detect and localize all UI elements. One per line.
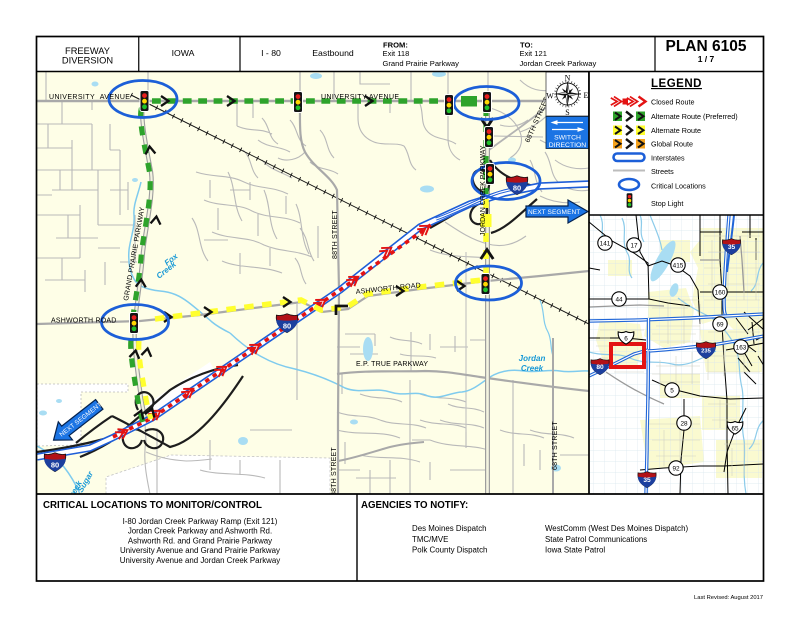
svg-text:W: W [546,92,554,101]
svg-text:TMC/MVE: TMC/MVE [412,535,448,544]
svg-text:92: 92 [672,466,680,473]
svg-text:Eastbound: Eastbound [312,48,354,58]
svg-text:N: N [565,74,571,83]
svg-text:S: S [565,108,569,117]
svg-text:80: 80 [596,364,604,371]
svg-text:UNIVERSITY AVENUE: UNIVERSITY AVENUE [49,94,130,101]
svg-text:Interstates: Interstates [651,154,685,163]
svg-text:88TH STREET: 88TH STREET [332,210,339,259]
svg-text:Jordan Creek Parkway and Ashwo: Jordan Creek Parkway and Ashworth Rd. [128,527,272,536]
svg-text:AGENCIES TO NOTIFY:: AGENCIES TO NOTIFY: [361,500,468,511]
svg-text:DIVERSION: DIVERSION [62,56,113,66]
svg-text:DIRECTION: DIRECTION [549,142,586,149]
svg-text:E.P. TRUE PARKWAY: E.P. TRUE PARKWAY [356,361,428,368]
svg-text:State Patrol Communications: State Patrol Communications [545,535,647,544]
svg-text:University Avenue and Jordan C: University Avenue and Jordan Creek Parkw… [120,556,280,565]
svg-text:LEGEND: LEGEND [651,78,702,90]
svg-text:Polk County Dispatch: Polk County Dispatch [412,546,487,555]
svg-text:Grand Prairie Parkway: Grand Prairie Parkway [383,59,460,68]
svg-text:Last Revised: August 2017: Last Revised: August 2017 [694,595,763,601]
svg-text:Ashworth Rd. and Grand Prairie: Ashworth Rd. and Grand Prairie Parkway [128,536,272,545]
svg-text:JORDAN CREEK PARKWAY: JORDAN CREEK PARKWAY [480,145,487,236]
svg-text:E: E [584,91,589,100]
svg-text:1 / 7: 1 / 7 [698,54,715,64]
svg-text:44: 44 [615,297,623,304]
svg-text:28: 28 [680,421,688,428]
svg-text:Exit 118: Exit 118 [383,49,410,58]
svg-text:160: 160 [715,290,726,297]
svg-text:Jordan Creek Parkway: Jordan Creek Parkway [520,59,597,68]
svg-text:Alternate Route (Preferred): Alternate Route (Preferred) [651,112,738,121]
svg-text:Closed Route: Closed Route [651,98,695,107]
svg-text:Alternate Route: Alternate Route [651,126,701,135]
svg-text:CRITICAL LOCATIONS TO MONITOR/: CRITICAL LOCATIONS TO MONITOR/CONTROL [43,500,262,511]
svg-text:65: 65 [731,426,739,433]
svg-text:I-80 Jordan Creek Parkway Ramp: I-80 Jordan Creek Parkway Ramp (Exit 121… [123,517,278,526]
svg-text:University Avenue and Grand Pr: University Avenue and Grand Prairie Park… [120,546,280,555]
svg-text:68TH STREET: 68TH STREET [552,421,559,470]
svg-text:Creek: Creek [521,364,544,373]
svg-text:Iowa State Patrol: Iowa State Patrol [545,546,605,555]
svg-text:PLAN 6105: PLAN 6105 [666,38,747,55]
svg-text:FREEWAY: FREEWAY [65,46,110,56]
svg-text:17: 17 [630,243,638,250]
svg-text:35: 35 [643,477,651,484]
svg-text:88TH STREET: 88TH STREET [331,447,338,496]
svg-text:415: 415 [673,263,684,270]
svg-text:6: 6 [624,336,628,343]
svg-text:WestComm (West Des Moines Disp: WestComm (West Des Moines Dispatch) [545,524,688,533]
svg-text:I - 80: I - 80 [261,48,281,58]
svg-text:Global Route: Global Route [651,140,693,149]
svg-text:NEXT SEGMENT: NEXT SEGMENT [528,209,580,216]
svg-text:235: 235 [701,349,711,355]
svg-text:SWITCH: SWITCH [554,135,581,142]
svg-text:Critical Locations: Critical Locations [651,182,706,191]
svg-text:163: 163 [736,345,747,352]
svg-text:141: 141 [600,241,611,248]
svg-text:UNIVERSITY AVENUE: UNIVERSITY AVENUE [321,94,400,101]
svg-text:Stop Light: Stop Light [651,199,683,208]
svg-text:IOWA: IOWA [172,48,195,58]
svg-text:Streets: Streets [651,167,674,176]
svg-text:69: 69 [716,322,724,329]
svg-text:5: 5 [670,388,674,395]
svg-text:Exit 121: Exit 121 [520,49,547,58]
svg-text:Des Moines Dispatch: Des Moines Dispatch [412,524,487,533]
svg-text:35: 35 [728,244,736,251]
svg-text:Jordan: Jordan [519,354,546,363]
svg-text:ASHWORTH ROAD: ASHWORTH ROAD [51,318,116,325]
